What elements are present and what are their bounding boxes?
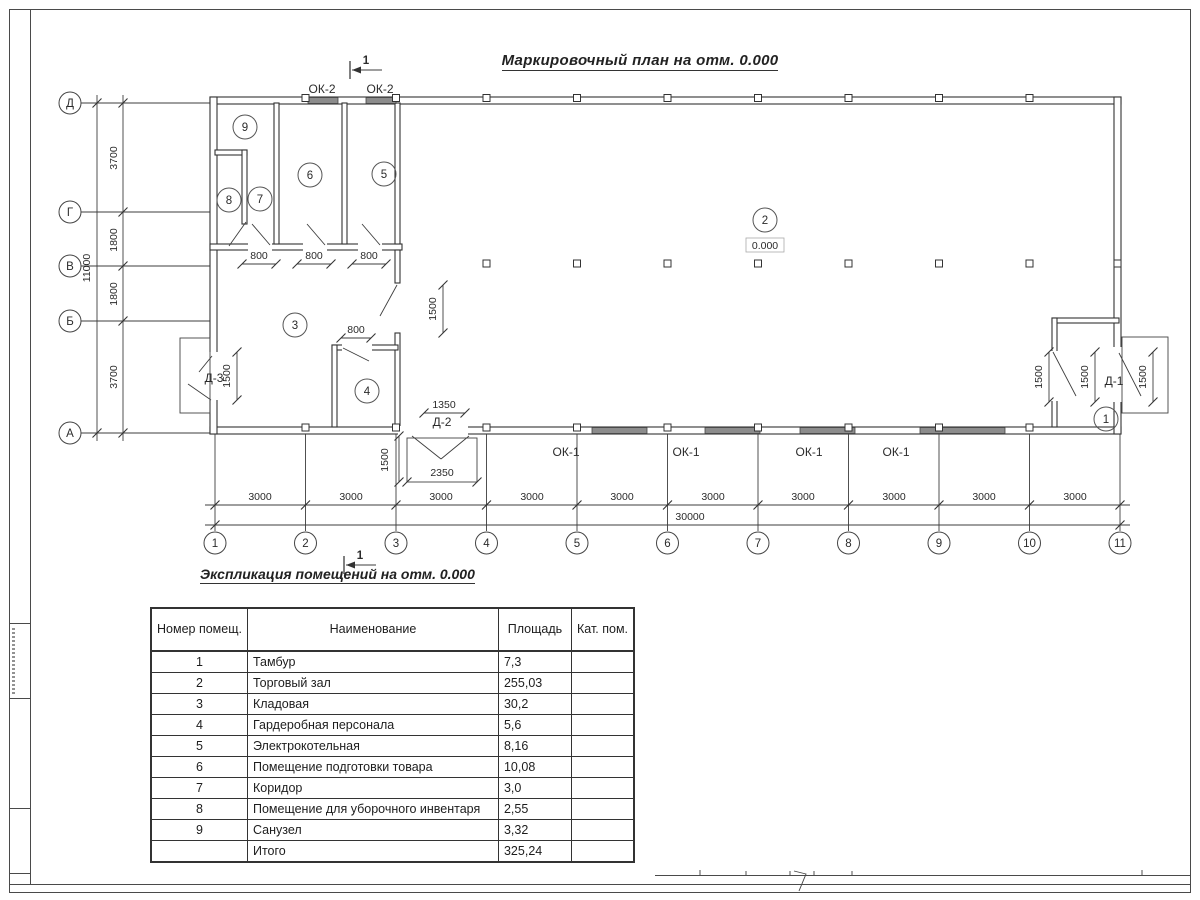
cell-name: Тамбур <box>247 651 498 673</box>
room-markers: 1 2 3 4 5 6 7 8 9 0.000 <box>217 115 1118 431</box>
table-row: 8 Помещение для уборочного инвентаря 2,5… <box>151 799 634 820</box>
dim-1500: 1500 <box>1079 365 1091 389</box>
door-label-d1: Д-1 <box>1105 374 1124 388</box>
axis-col-label: 5 <box>574 538 580 550</box>
dim-bottom: 3000 <box>429 491 453 503</box>
cell-category <box>571 736 634 757</box>
cell-area: 7,3 <box>498 651 571 673</box>
room-number: 5 <box>381 169 387 181</box>
dim-1500: 1500 <box>379 448 391 472</box>
table-row: 1 Тамбур 7,3 <box>151 651 634 673</box>
axis-col-label: 8 <box>845 538 851 550</box>
window-label-ok1: ОК-1 <box>673 445 700 459</box>
axis-col-label: 11 <box>1114 538 1126 550</box>
window-label-ok2: ОК-2 <box>367 82 394 96</box>
table-row: 4 Гардеробная персонала 5,6 <box>151 715 634 736</box>
cell-name: Кладовая <box>247 694 498 715</box>
room-number: 3 <box>292 320 298 332</box>
table-row: 2 Торговый зал 255,03 <box>151 673 634 694</box>
axis-row-label: А <box>66 428 74 440</box>
cell-number: 2 <box>151 673 247 694</box>
drawing-sheet: Маркировочный план на отм. 0.000 Эксплик… <box>0 0 1200 900</box>
window-label-ok1: ОК-1 <box>553 445 580 459</box>
table-header-row: Номер помещ. Наименование Площадь Кат. п… <box>151 608 634 651</box>
section-mark-label: 1 <box>363 55 370 67</box>
axis-circles-bottom: 1 2 3 4 5 6 7 8 9 10 11 <box>204 532 1131 554</box>
cell-area: 3,32 <box>498 820 571 841</box>
axis-col-label: 2 <box>302 538 308 550</box>
dim-left-total: 11000 <box>81 254 93 283</box>
dim-bottom: 3000 <box>610 491 634 503</box>
cell-number: 9 <box>151 820 247 841</box>
room-number: 7 <box>257 194 263 206</box>
dim-bottom: 3000 <box>520 491 544 503</box>
dim-1500: 1500 <box>1033 365 1045 389</box>
door-leaves <box>188 222 1141 459</box>
header-area: Площадь <box>498 608 571 651</box>
axis-col-label: 1 <box>212 538 218 550</box>
dim-bottom: 3000 <box>791 491 815 503</box>
cell-category <box>571 778 634 799</box>
table-row: 6 Помещение подготовки товара 10,08 <box>151 757 634 778</box>
cell-number: 1 <box>151 651 247 673</box>
section-mark-label: 1 <box>357 550 364 562</box>
cell-name: Итого <box>247 841 498 863</box>
header-name: Наименование <box>247 608 498 651</box>
dim-door: 800 <box>250 250 268 262</box>
cell-number: 7 <box>151 778 247 799</box>
dim-d2-porch: 2350 <box>430 467 454 479</box>
elevation-mark: 0.000 <box>752 240 778 252</box>
cell-number: 8 <box>151 799 247 820</box>
dim-bottom: 3000 <box>701 491 725 503</box>
axis-col-label: 6 <box>664 538 670 550</box>
cell-name: Электрокотельная <box>247 736 498 757</box>
axis-col-label: 10 <box>1023 538 1036 550</box>
cell-name: Коридор <box>247 778 498 799</box>
cell-category <box>571 715 634 736</box>
door-label-d3: Д-3 <box>205 371 224 385</box>
dim-left-segment: 3700 <box>108 146 120 170</box>
dim-1500: 1500 <box>1137 365 1149 389</box>
table-row: 5 Электрокотельная 8,16 <box>151 736 634 757</box>
dim-door: 800 <box>347 324 365 336</box>
dim-left-segment: 1800 <box>108 282 120 306</box>
dim-bottom: 3000 <box>248 491 272 503</box>
cell-number: 4 <box>151 715 247 736</box>
axis-row-label: Г <box>67 207 74 219</box>
title-block-marks <box>700 870 1142 891</box>
dim-left-segment: 3700 <box>108 365 120 389</box>
dim-bottom: 3000 <box>972 491 996 503</box>
porches <box>180 337 1168 482</box>
cell-name: Помещение подготовки товара <box>247 757 498 778</box>
dim-bottom-total: 30000 <box>675 511 704 523</box>
axis-circles-left: Д Г В Б А <box>59 92 81 444</box>
room-number: 2 <box>762 215 768 227</box>
window-label-ok2: ОК-2 <box>309 82 336 96</box>
cell-area: 30,2 <box>498 694 571 715</box>
cell-area: 255,03 <box>498 673 571 694</box>
axis-col-label: 3 <box>393 538 399 550</box>
dim-left-segment: 1800 <box>108 228 120 252</box>
window-label-ok1: ОК-1 <box>796 445 823 459</box>
cell-category <box>571 799 634 820</box>
header-number: Номер помещ. <box>151 608 247 651</box>
room-schedule-table: Номер помещ. Наименование Площадь Кат. п… <box>150 607 635 863</box>
cell-number: 5 <box>151 736 247 757</box>
cell-area: 325,24 <box>498 841 571 863</box>
dim-bottom: 3000 <box>1063 491 1087 503</box>
cell-name: Помещение для уборочного инвентаря <box>247 799 498 820</box>
dim-d2-width: 1350 <box>432 399 456 411</box>
dim-1500: 1500 <box>427 297 439 321</box>
table-row: 3 Кладовая 30,2 <box>151 694 634 715</box>
cell-category <box>571 651 634 673</box>
axis-row-label: Д <box>66 98 74 110</box>
cell-area: 8,16 <box>498 736 571 757</box>
dimensions-bottom: 3000 3000 3000 3000 3000 3000 3000 3000 … <box>205 434 1130 531</box>
dim-bottom: 3000 <box>339 491 363 503</box>
table-row: 7 Коридор 3,0 <box>151 778 634 799</box>
wall-openings <box>209 243 1122 435</box>
axis-col-label: 4 <box>483 538 490 550</box>
axis-col-label: 7 <box>755 538 761 550</box>
cell-name: Санузел <box>247 820 498 841</box>
room-number: 6 <box>307 170 313 182</box>
dimensions-left: 11000 3700 1800 1800 3700 <box>81 95 128 441</box>
table-row-total: Итого 325,24 <box>151 841 634 863</box>
table-row: 9 Санузел 3,32 <box>151 820 634 841</box>
room-number: 9 <box>242 122 248 134</box>
columns <box>302 95 1121 432</box>
door-label-d2: Д-2 <box>433 415 452 429</box>
room-number: 1 <box>1103 414 1109 426</box>
axis-col-label: 9 <box>936 538 942 550</box>
header-category: Кат. пом. <box>571 608 634 651</box>
room-number: 4 <box>364 386 371 398</box>
cell-category <box>571 673 634 694</box>
room-number: 8 <box>226 195 232 207</box>
cell-number: 3 <box>151 694 247 715</box>
cell-category <box>571 757 634 778</box>
dim-door: 800 <box>305 250 323 262</box>
cell-number <box>151 841 247 863</box>
dim-door: 800 <box>360 250 378 262</box>
axis-lines-left <box>81 103 210 433</box>
cell-category <box>571 694 634 715</box>
axis-row-label: В <box>66 261 74 273</box>
dim-bottom: 3000 <box>882 491 906 503</box>
windows <box>308 98 1005 434</box>
cell-category <box>571 820 634 841</box>
cell-number: 6 <box>151 757 247 778</box>
window-label-ok1: ОК-1 <box>883 445 910 459</box>
cell-area: 3,0 <box>498 778 571 799</box>
cell-area: 2,55 <box>498 799 571 820</box>
cell-name: Торговый зал <box>247 673 498 694</box>
cell-area: 5,6 <box>498 715 571 736</box>
cell-name: Гардеробная персонала <box>247 715 498 736</box>
cell-area: 10,08 <box>498 757 571 778</box>
axis-row-label: Б <box>66 316 74 328</box>
cell-category <box>571 841 634 863</box>
